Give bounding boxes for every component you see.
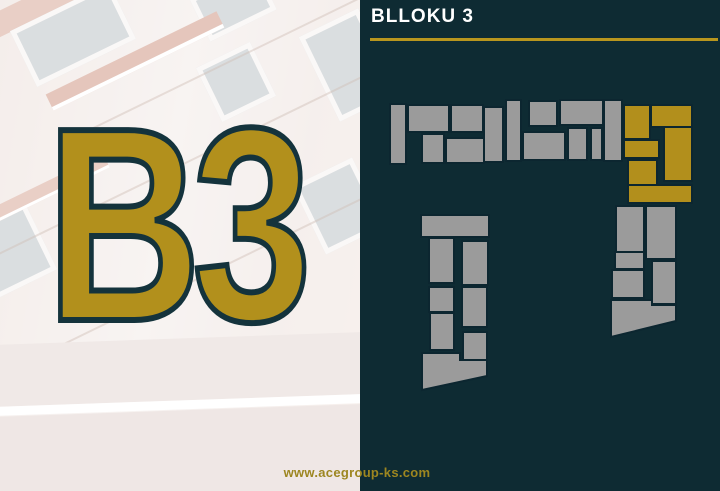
site-plan-block[interactable] (429, 238, 454, 283)
site-plan-block[interactable] (646, 206, 676, 259)
site-plan-block[interactable] (523, 132, 565, 160)
site-plan-block[interactable] (529, 101, 557, 126)
site-plan-block-highlighted[interactable] (664, 127, 692, 181)
site-plan-block[interactable] (506, 100, 521, 161)
site-plan-block[interactable] (611, 300, 676, 337)
site-plan-block[interactable] (390, 104, 406, 164)
site-plan-block[interactable] (446, 138, 484, 163)
site-plan-block[interactable] (462, 287, 487, 327)
site-plan-block[interactable] (484, 107, 503, 162)
site-plan-block-highlighted[interactable] (651, 105, 692, 127)
site-plan-block[interactable] (421, 215, 489, 237)
site-plan-block[interactable] (408, 105, 449, 132)
site-plan-block[interactable] (604, 100, 622, 161)
site-plan-block[interactable] (429, 287, 454, 312)
site-plan (360, 0, 720, 491)
site-plan-block[interactable] (652, 261, 676, 304)
site-plan-block-highlighted[interactable] (628, 160, 657, 186)
block-code-overlay: B3 (46, 87, 302, 363)
site-plan-block[interactable] (430, 313, 454, 350)
block-info-panel: BLLOKU 3 (360, 0, 720, 491)
site-plan-block[interactable] (422, 134, 444, 163)
site-plan-block[interactable] (591, 128, 602, 160)
site-plan-block[interactable] (462, 241, 488, 285)
site-plan-block[interactable] (463, 332, 487, 360)
site-plan-block[interactable] (612, 270, 644, 298)
screen: B3 BLLOKU 3 www.acegroup-ks.com (0, 0, 720, 491)
site-plan-block[interactable] (568, 128, 587, 160)
site-plan-block[interactable] (451, 105, 483, 132)
website-url: www.acegroup-ks.com (0, 465, 714, 480)
building-photo-panel: B3 (0, 0, 360, 491)
site-plan-block-highlighted[interactable] (624, 140, 659, 158)
site-plan-block[interactable] (560, 100, 603, 125)
site-plan-block[interactable] (615, 252, 644, 269)
site-plan-block-highlighted[interactable] (628, 185, 692, 203)
site-plan-block[interactable] (616, 206, 644, 253)
site-plan-block-highlighted[interactable] (624, 105, 650, 139)
